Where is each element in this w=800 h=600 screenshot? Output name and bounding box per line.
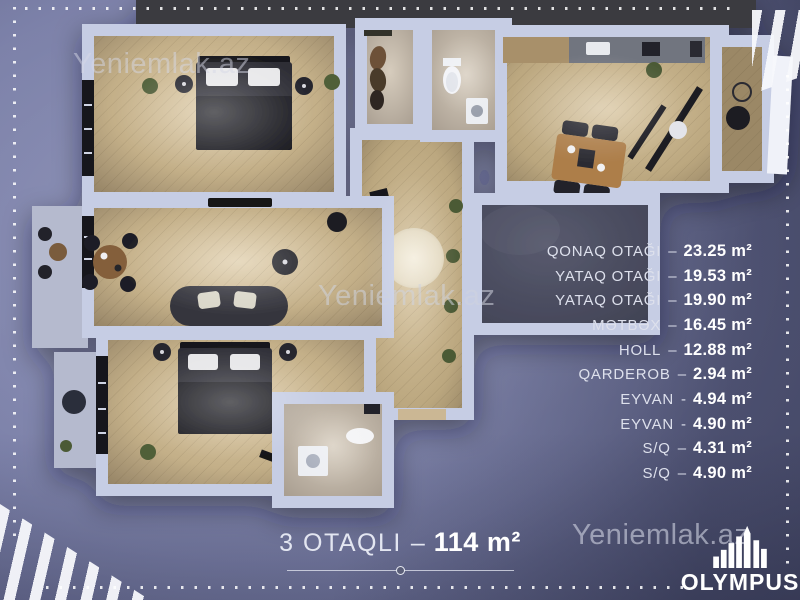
entrance-door (398, 409, 446, 420)
room-separator: - (681, 391, 686, 408)
room-row: YATAQ OTAĞI – 19.53 m² (555, 264, 752, 289)
balcony-left-bedroom (54, 352, 102, 468)
tv (208, 198, 272, 207)
total-area: 114 m² (434, 527, 521, 558)
room-name: HOLL (619, 342, 661, 359)
room-area: 19.53 m² (684, 267, 752, 286)
room-name: S/Q (642, 440, 670, 457)
room-row: QARDEROB – 2.94 m² (578, 362, 752, 387)
room-separator: – (668, 342, 676, 359)
room-area: 2.94 m² (693, 365, 752, 384)
wardrobe-room (361, 24, 419, 130)
room-separator: – (668, 243, 676, 260)
room-row: EYVAN - 4.94 m² (620, 387, 752, 412)
dotted-line-right (786, 75, 789, 567)
room-name: EYVAN (620, 391, 674, 408)
room-area: 16.45 m² (684, 316, 752, 335)
dotted-line-left (13, 7, 16, 547)
room-separator: – (668, 268, 676, 285)
room-list: QONAQ OTAĞI – 23.25 m² YATAQ OTAĞI – 19.… (547, 239, 752, 486)
dotted-line-top (25, 7, 737, 10)
dotted-line-bottom (46, 586, 692, 589)
room-area: 4.94 m² (693, 390, 752, 409)
room-row: QONAQ OTAĞI – 23.25 m² (547, 239, 752, 264)
balcony-left-living (32, 206, 88, 348)
room-row: S/Q – 4.31 m² (642, 437, 752, 462)
room-row: EYVAN - 4.90 m² (620, 412, 752, 437)
room-area: 19.90 m² (684, 291, 752, 310)
room-name: MƏTBƏX (592, 317, 661, 334)
room-area: 4.90 m² (693, 415, 752, 434)
balcony-table (726, 106, 750, 130)
room-area: 4.31 m² (693, 439, 752, 458)
watermark-center: Yeniemlak.az (318, 280, 495, 313)
room-separator: – (668, 292, 676, 309)
room-name: YATAQ OTAĞI (555, 292, 661, 309)
apartment-type: 3 OTAQLI (279, 529, 402, 558)
room-name: YATAQ OTAĞI (555, 268, 661, 285)
window-frame (96, 356, 108, 454)
room-row: YATAQ OTAĞI – 19.90 m² (555, 288, 752, 313)
room-separator: – (678, 440, 686, 457)
room-area: 4.90 m² (693, 464, 752, 483)
apartment-summary: 3 OTAQLI – 114 m² (279, 527, 521, 558)
room-separator: – (678, 366, 686, 383)
room-row: MƏTBƏX – 16.45 m² (592, 313, 752, 338)
room-separator: – (678, 465, 686, 482)
room-name: QARDEROB (578, 366, 670, 383)
summary-separator: – (411, 529, 425, 558)
room-name: S/Q (642, 465, 670, 482)
room-separator: - (681, 416, 686, 433)
room-name: QONAQ OTAĞI (547, 243, 661, 260)
divider-ring (396, 566, 405, 575)
watermark-top-left: Yeniemlak.az (73, 48, 250, 81)
listing-poster: Yeniemlak.az Yeniemlak.az Yeniemlak.az Q… (0, 0, 800, 600)
room-row: S/Q – 4.90 m² (642, 461, 752, 486)
brand-logo: OLYMPUS (682, 524, 798, 596)
dining-table (93, 245, 127, 279)
room-area: 23.25 m² (684, 242, 752, 261)
room-row: HOLL – 12.88 m² (619, 338, 752, 363)
brand-name: OLYMPUS (681, 569, 800, 596)
room-name: EYVAN (620, 416, 674, 433)
room-separator: – (668, 317, 676, 334)
room-area: 12.88 m² (684, 341, 752, 360)
stove (642, 42, 660, 56)
building-icon (711, 524, 769, 568)
